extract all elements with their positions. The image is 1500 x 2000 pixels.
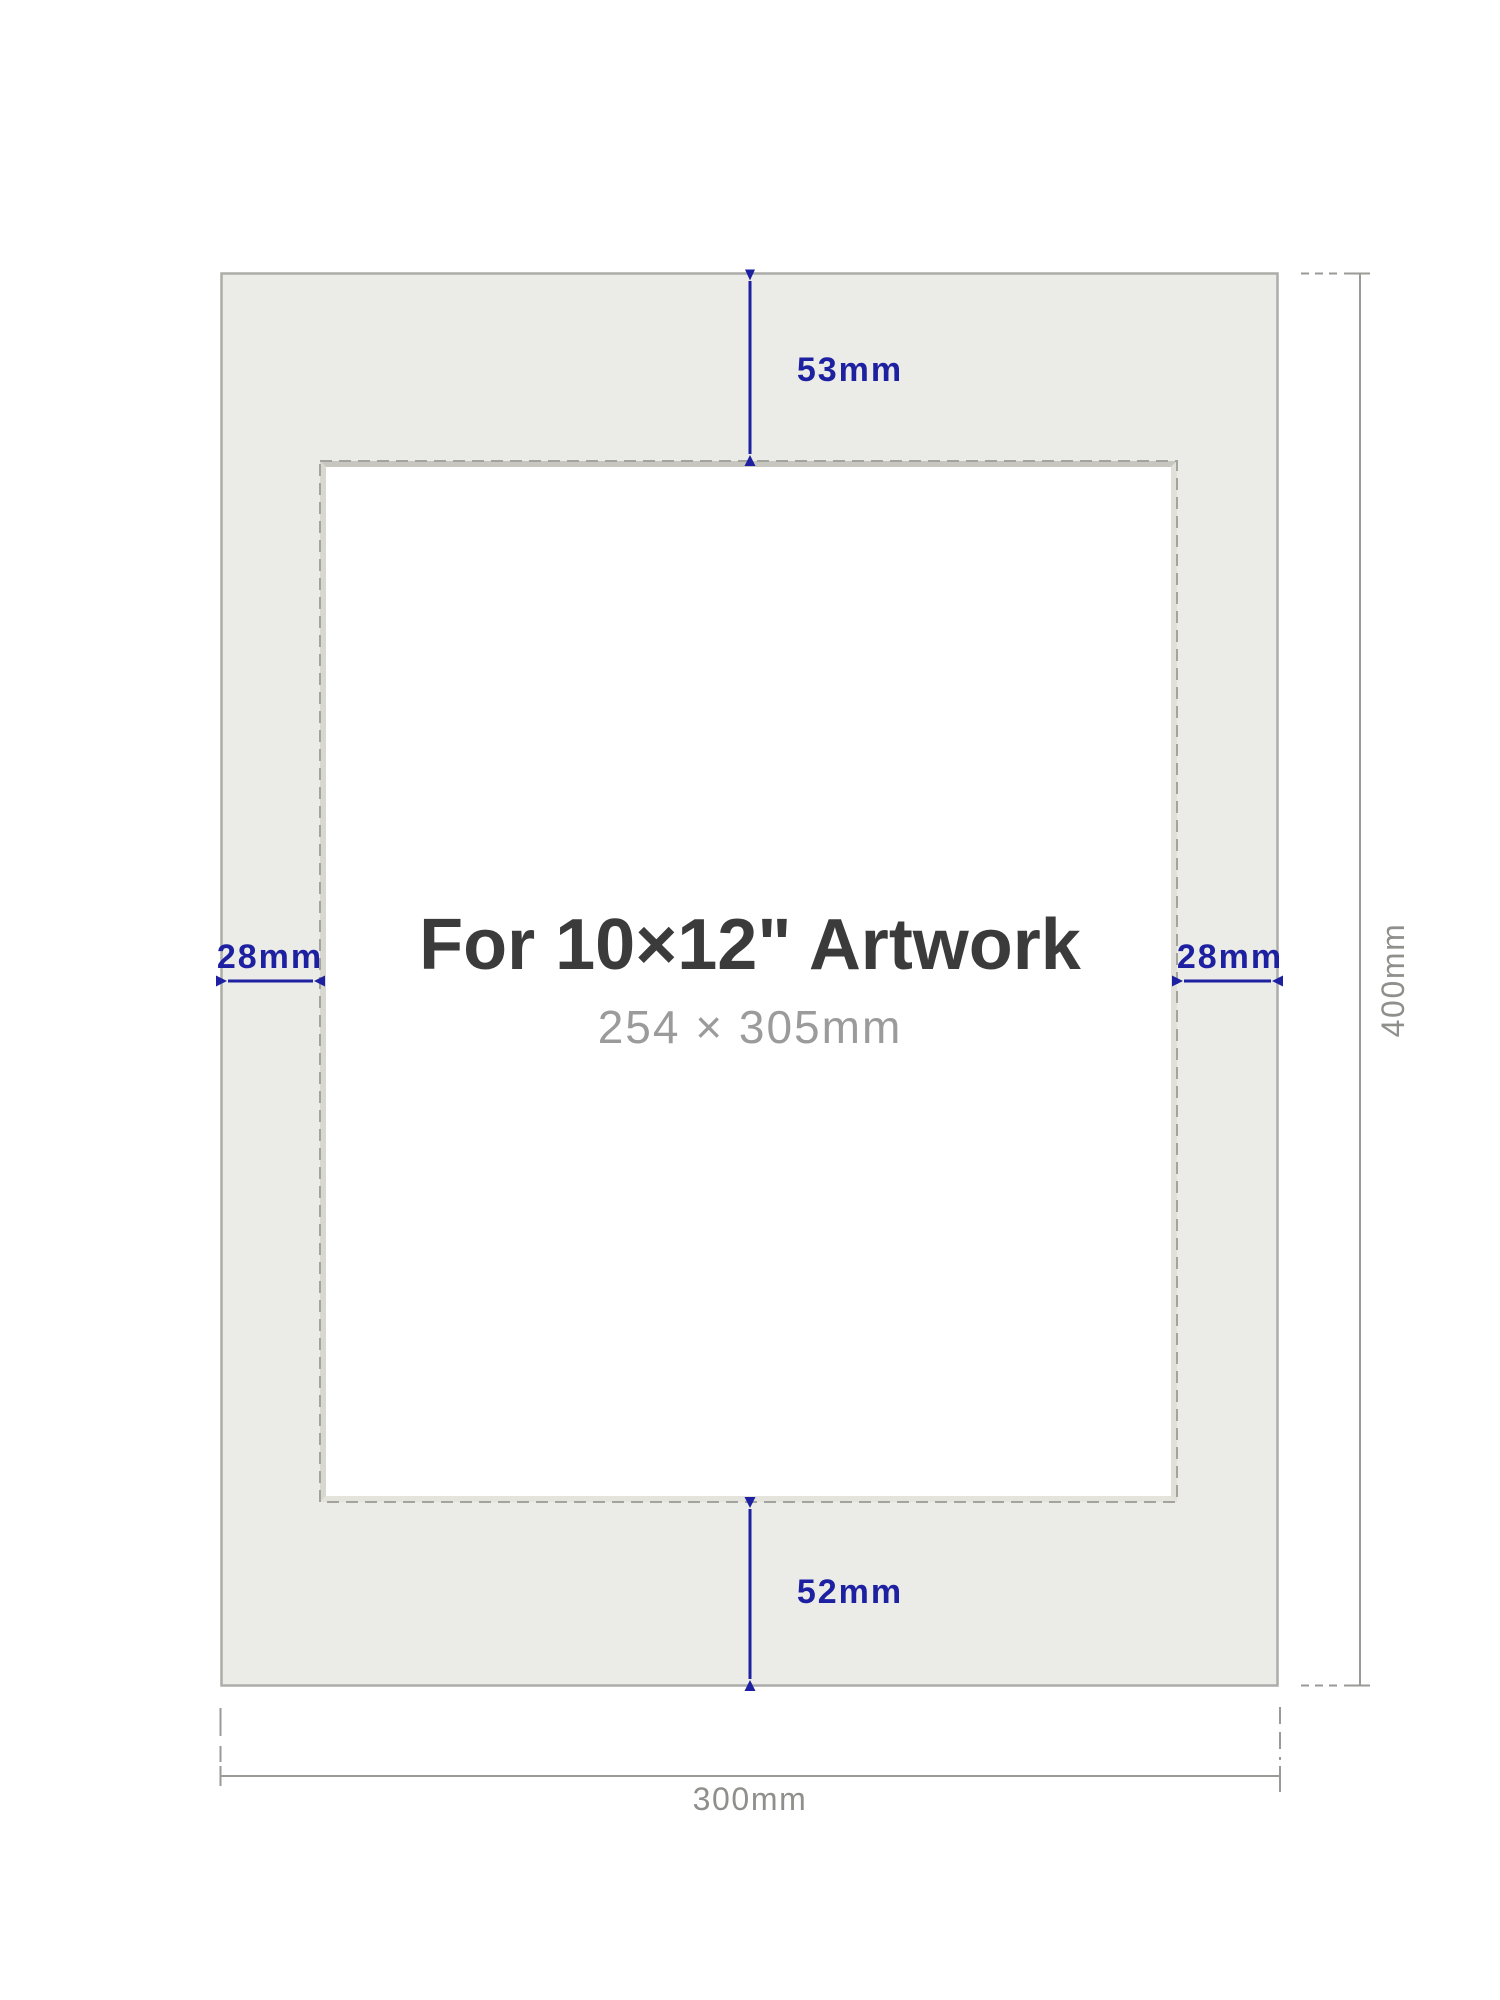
svg-text:For 10×12" Artwork: For 10×12" Artwork <box>419 905 1082 985</box>
svg-text:28mm: 28mm <box>217 938 323 976</box>
svg-text:300mm: 300mm <box>693 1781 808 1817</box>
svg-text:28mm: 28mm <box>1177 938 1283 976</box>
svg-text:254 × 305mm: 254 × 305mm <box>598 1001 903 1053</box>
svg-text:53mm: 53mm <box>797 351 903 389</box>
svg-text:52mm: 52mm <box>797 1573 903 1611</box>
svg-text:400mm: 400mm <box>1375 923 1411 1038</box>
